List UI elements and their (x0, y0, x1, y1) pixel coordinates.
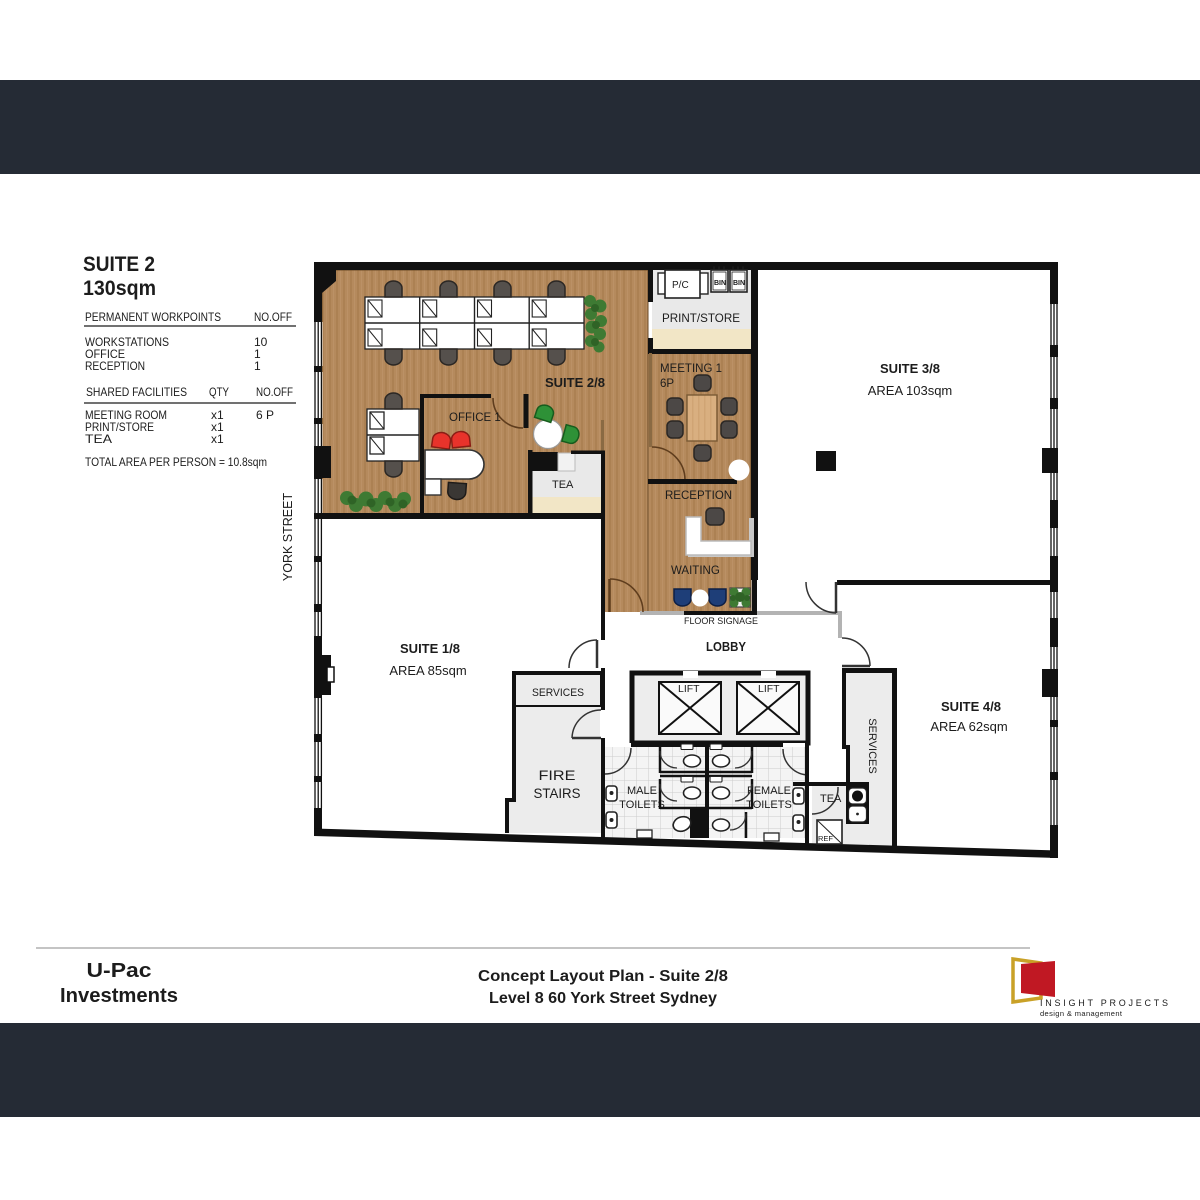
svg-text:REF: REF (818, 834, 833, 843)
svg-text:SUITE 2: SUITE 2 (83, 253, 155, 276)
svg-text:SUITE 2/8: SUITE 2/8 (545, 375, 605, 390)
svg-text:U-Pac: U-Pac (87, 960, 152, 982)
svg-text:SHARED FACILITIES: SHARED FACILITIES (86, 385, 187, 399)
svg-text:RECEPTION: RECEPTION (85, 359, 145, 373)
svg-text:BIN: BIN (714, 280, 726, 287)
svg-text:MEETING 1: MEETING 1 (660, 363, 722, 375)
svg-text:LIFT: LIFT (758, 683, 780, 695)
svg-text:FEMALE: FEMALE (747, 785, 791, 797)
svg-text:FLOOR SIGNAGE: FLOOR SIGNAGE (684, 616, 758, 627)
svg-text:Concept Layout Plan - Suite 2/: Concept Layout Plan - Suite 2/8 (478, 968, 728, 985)
svg-text:x1: x1 (211, 432, 224, 446)
svg-text:AREA 103sqm: AREA 103sqm (868, 383, 953, 398)
svg-text:RECEPTION: RECEPTION (665, 490, 732, 502)
svg-text:SUITE 4/8: SUITE 4/8 (941, 699, 1001, 714)
svg-text:LOBBY: LOBBY (706, 640, 747, 654)
svg-text:6 P: 6 P (256, 408, 274, 422)
svg-text:TEA: TEA (820, 793, 842, 805)
svg-text:TEA: TEA (552, 479, 574, 491)
svg-text:QTY: QTY (209, 385, 229, 399)
svg-text:AREA 85sqm: AREA 85sqm (389, 663, 466, 678)
svg-text:P/C: P/C (672, 280, 689, 291)
svg-text:TOILETS: TOILETS (619, 799, 665, 811)
svg-text:BIN: BIN (733, 280, 745, 287)
svg-text:SERVICES: SERVICES (866, 718, 878, 773)
svg-text:WAITING: WAITING (671, 565, 720, 577)
svg-text:Investments: Investments (60, 985, 178, 1007)
svg-text:SERVICES: SERVICES (532, 687, 584, 699)
svg-text:OFFICE 1: OFFICE 1 (449, 412, 501, 424)
svg-text:FIRE: FIRE (539, 768, 576, 783)
svg-text:1: 1 (254, 359, 261, 373)
svg-text:design & management: design & management (1040, 1009, 1123, 1018)
svg-text:MALE: MALE (627, 785, 657, 797)
svg-text:6P: 6P (660, 378, 674, 390)
svg-text:INSIGHT PROJECTS: INSIGHT PROJECTS (1040, 998, 1168, 1008)
svg-text:YORK STREET: YORK STREET (281, 493, 295, 582)
svg-text:NO.OFF: NO.OFF (254, 310, 292, 324)
svg-text:TEA: TEA (85, 432, 112, 446)
svg-text:SUITE 3/8: SUITE 3/8 (880, 361, 940, 376)
svg-text:PRINT/STORE: PRINT/STORE (662, 311, 740, 325)
svg-text:AREA 62sqm: AREA 62sqm (930, 719, 1007, 734)
svg-text:130sqm: 130sqm (83, 277, 156, 300)
svg-text:NO.OFF: NO.OFF (256, 385, 293, 399)
svg-text:STAIRS: STAIRS (534, 786, 581, 801)
svg-text:Level 8 60 York Street Sydney: Level 8 60 York Street Sydney (489, 990, 717, 1007)
svg-text:SUITE 1/8: SUITE 1/8 (400, 641, 460, 656)
svg-text:PERMANENT WORKPOINTS: PERMANENT WORKPOINTS (85, 310, 221, 324)
svg-text:TOTAL AREA PER PERSON = 10.8sq: TOTAL AREA PER PERSON = 10.8sqm (85, 455, 267, 469)
svg-text:LIFT: LIFT (678, 683, 700, 695)
